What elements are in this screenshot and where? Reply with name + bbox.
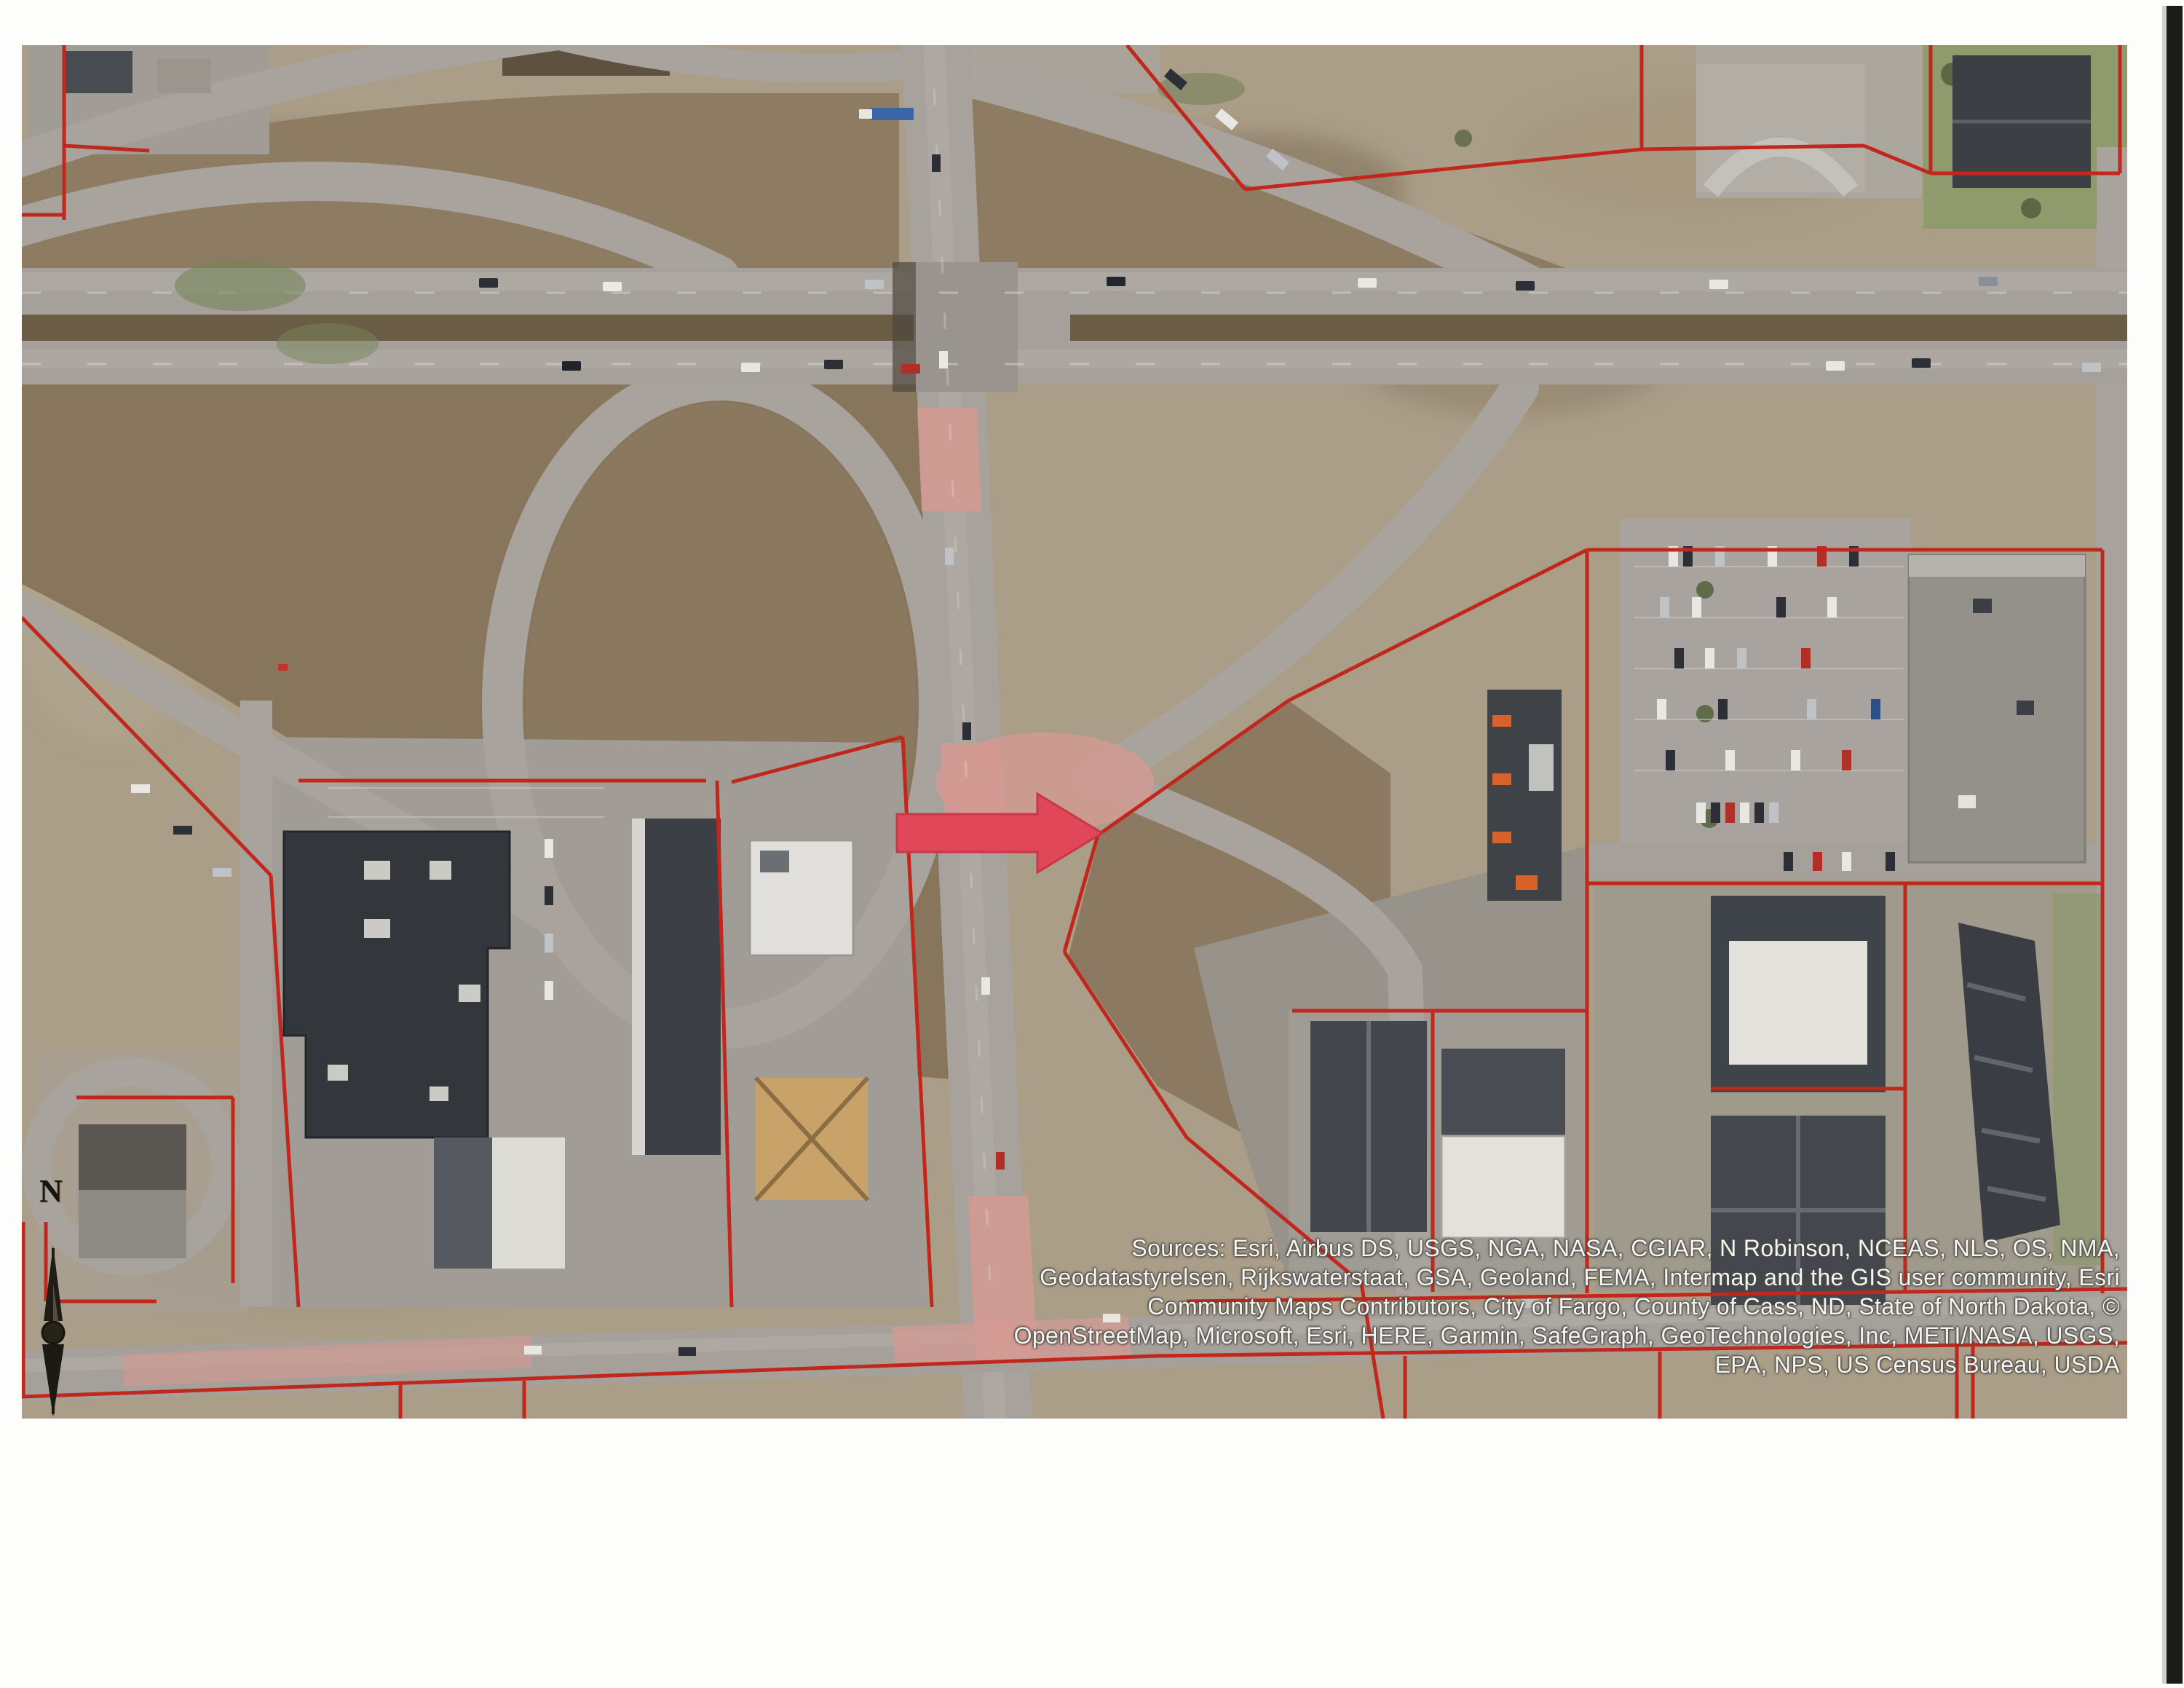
attribution-line: Sources: Esri, Airbus DS, USGS, NGA, NAS… <box>795 1234 2120 1263</box>
building-big-commercial <box>1909 555 2085 862</box>
building-long-dark <box>632 819 721 1155</box>
aerial-map: Sources: Esri, Airbus DS, USGS, NGA, NAS… <box>22 45 2127 1419</box>
attribution-line: Geodatastyrelsen, Rijkswaterstaat, GSA, … <box>795 1263 2120 1292</box>
map-attribution: Sources: Esri, Airbus DS, USGS, NGA, NAS… <box>795 1234 2120 1379</box>
attribution-line: Community Maps Contributors, City of Far… <box>795 1292 2120 1321</box>
attribution-line: OpenStreetMap, Microsoft, Esri, HERE, Ga… <box>795 1321 2120 1350</box>
scan-edge-artifact <box>2167 6 2183 1684</box>
scanned-page: Sources: Esri, Airbus DS, USGS, NGA, NAS… <box>0 0 2184 1688</box>
north-arrow: N <box>31 1172 89 1419</box>
north-label: N <box>39 1172 63 1210</box>
attribution-line: EPA, NPS, US Census Bureau, USDA <box>795 1350 2120 1379</box>
aerial-imagery <box>22 45 2127 1419</box>
